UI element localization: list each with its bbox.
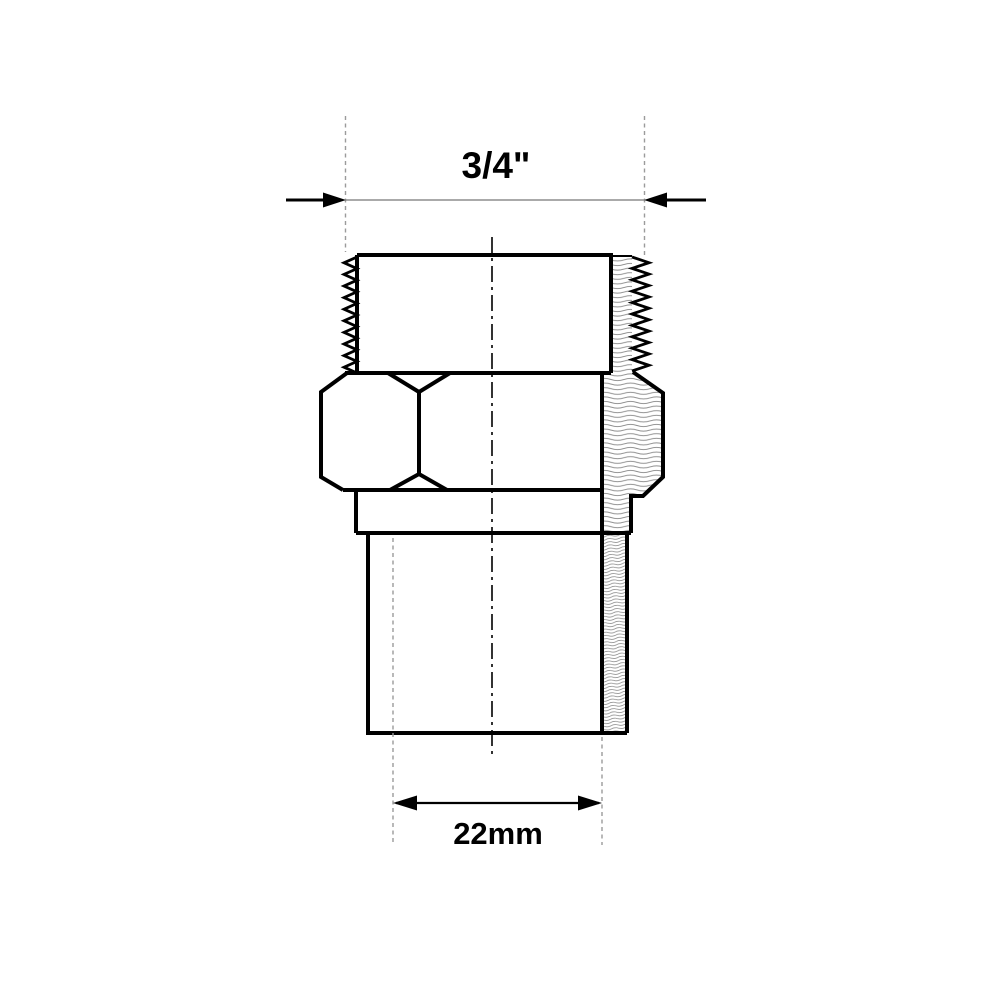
thread-section-hatch: [611, 256, 632, 373]
cylinder-section-hatch: [602, 533, 627, 733]
top-dimension-label: 3/4": [462, 145, 531, 186]
technical-drawing: 3/4" 22mm: [0, 0, 1000, 1000]
bottom-dimension-label: 22mm: [453, 816, 543, 851]
drawing-canvas: 3/4" 22mm: [0, 0, 1000, 1000]
